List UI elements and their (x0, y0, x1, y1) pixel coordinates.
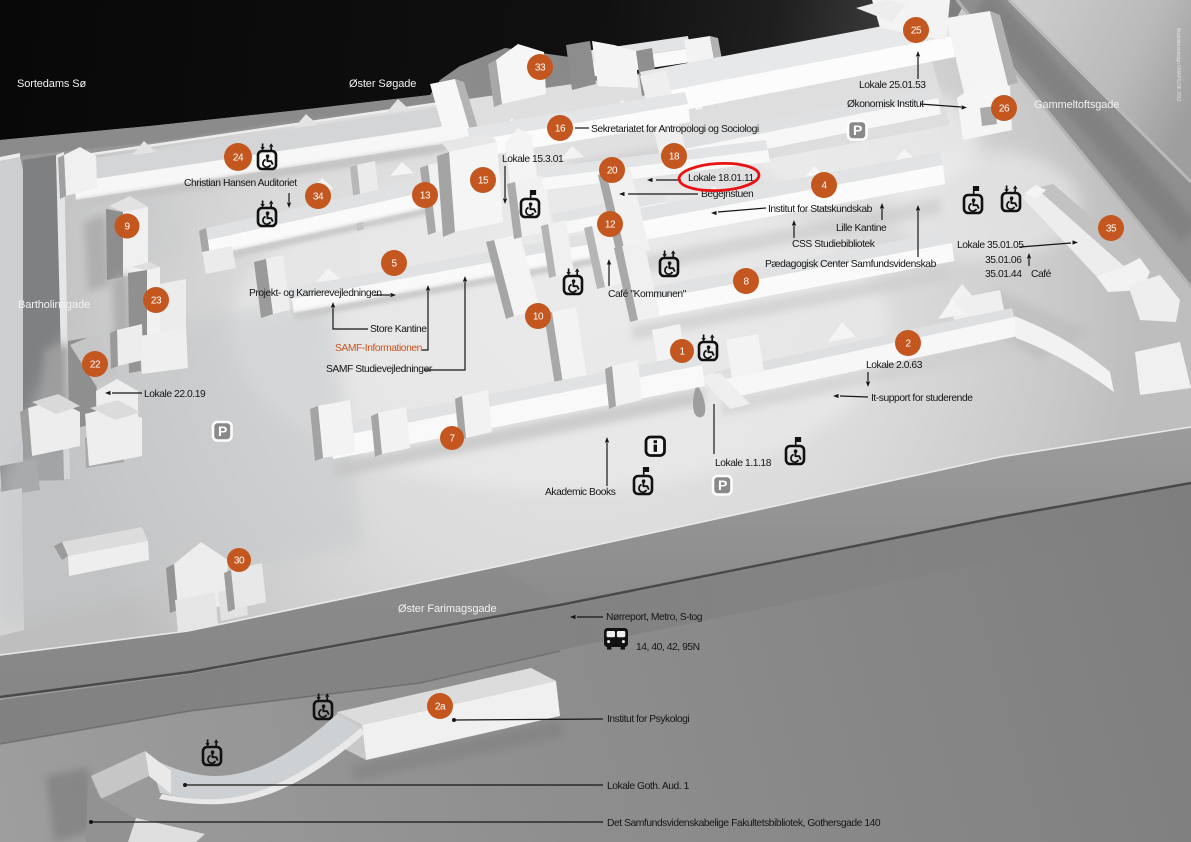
svg-text:22: 22 (90, 360, 101, 371)
svg-text:Det Samfundsvidenskabelige Fak: Det Samfundsvidenskabelige Fakultetsbibl… (607, 818, 881, 829)
svg-text:16: 16 (555, 124, 566, 135)
svg-text:33: 33 (535, 63, 546, 74)
svg-text:35.01.06: 35.01.06 (985, 255, 1022, 266)
svg-text:Øster Farimagsgade: Øster Farimagsgade (398, 603, 496, 615)
svg-text:10: 10 (533, 312, 544, 323)
svg-text:Café: Café (1031, 269, 1052, 280)
svg-text:35: 35 (1106, 224, 1117, 235)
svg-text:Lokale 25.01.53: Lokale 25.01.53 (859, 80, 926, 91)
svg-text:SAMF Studievejledninger: SAMF Studievejledninger (326, 364, 433, 375)
svg-text:Nørreport, Metro, S-tog: Nørreport, Metro, S-tog (606, 612, 703, 623)
svg-text:20: 20 (607, 166, 618, 177)
svg-text:Illustrationsdesign ©MAPS.DK 2: Illustrationsdesign ©MAPS.DK 2012 (1175, 28, 1182, 102)
svg-text:Christian Hansen Auditoriet: Christian Hansen Auditoriet (184, 178, 297, 189)
svg-text:18: 18 (669, 152, 680, 163)
svg-text:Bartholinsgade: Bartholinsgade (18, 299, 90, 311)
svg-text:Projekt- og Karrierevejledning: Projekt- og Karrierevejledningen (249, 288, 382, 299)
svg-text:Store Kantine: Store Kantine (370, 324, 427, 335)
svg-text:Institut for Statskundskab: Institut for Statskundskab (768, 204, 873, 215)
svg-text:Institut for Psykologi: Institut for Psykologi (607, 714, 689, 725)
svg-text:9: 9 (124, 222, 130, 233)
svg-text:2: 2 (905, 339, 911, 350)
svg-text:5: 5 (391, 259, 397, 270)
svg-text:12: 12 (605, 220, 616, 231)
svg-text:Lokale 22.0.19: Lokale 22.0.19 (144, 389, 206, 400)
svg-text:Akademic Books: Akademic Books (545, 487, 616, 498)
svg-text:13: 13 (420, 191, 431, 202)
svg-text:Lokale 1.1.18: Lokale 1.1.18 (715, 458, 772, 469)
svg-text:14, 40, 42, 95N: 14, 40, 42, 95N (636, 642, 700, 653)
svg-text:CSS Studiebibliotek: CSS Studiebibliotek (792, 239, 876, 250)
svg-text:23: 23 (151, 296, 162, 307)
svg-text:1: 1 (679, 347, 685, 358)
svg-text:30: 30 (234, 556, 245, 567)
svg-text:Pædagogisk Center Samfundsvide: Pædagogisk Center Samfundsvidenskab (765, 259, 937, 270)
svg-text:Sortedams Sø: Sortedams Sø (17, 78, 86, 90)
svg-text:SAMF-Informationen: SAMF-Informationen (335, 343, 423, 354)
svg-text:Gammeltoftsgade: Gammeltoftsgade (1034, 99, 1119, 111)
svg-text:15: 15 (478, 176, 489, 187)
svg-text:Lokale 35.01.05: Lokale 35.01.05 (957, 240, 1024, 251)
svg-text:24: 24 (233, 153, 244, 164)
svg-text:Økonomisk Institut: Økonomisk Institut (847, 99, 924, 110)
svg-text:7: 7 (449, 434, 455, 445)
svg-text:Lokale 18.01.11: Lokale 18.01.11 (688, 173, 754, 184)
svg-text:Café "Kommunen": Café "Kommunen" (608, 289, 687, 300)
svg-text:26: 26 (999, 104, 1010, 115)
svg-text:Lille Kantine: Lille Kantine (836, 223, 887, 234)
svg-text:35.01.44: 35.01.44 (985, 269, 1022, 280)
svg-text:Sekretariatet for Antropologi: Sekretariatet for Antropologi og Sociolo… (591, 124, 759, 135)
svg-text:Lokale 15.3.01: Lokale 15.3.01 (502, 154, 564, 165)
svg-text:It-support for studerende: It-support for studerende (871, 393, 973, 404)
svg-text:Øster Søgade: Øster Søgade (349, 78, 416, 90)
svg-text:Lokale 2.0.63: Lokale 2.0.63 (866, 360, 923, 371)
svg-text:4: 4 (821, 181, 827, 192)
svg-text:2a: 2a (435, 702, 446, 713)
svg-text:25: 25 (911, 26, 922, 37)
svg-text:8: 8 (743, 277, 749, 288)
svg-text:Lokale Goth. Aud. 1: Lokale Goth. Aud. 1 (607, 781, 690, 792)
svg-text:34: 34 (313, 192, 324, 203)
